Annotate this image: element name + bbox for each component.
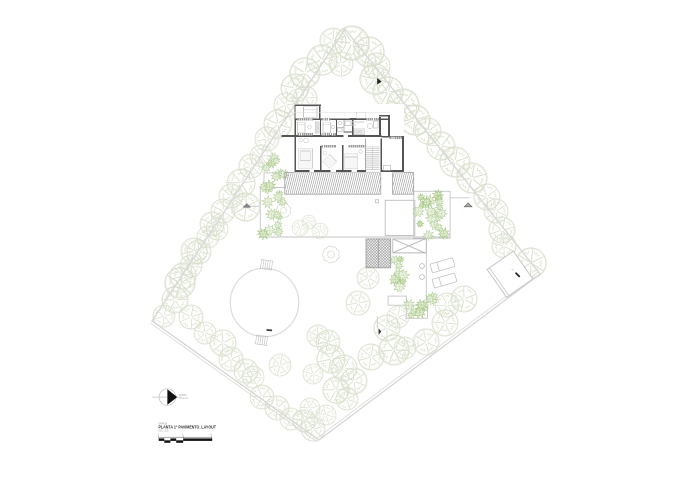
- svg-text:ESC 1:100: ESC 1:100: [159, 430, 170, 433]
- svg-text:VERDADEIRO: VERDADEIRO: [180, 397, 189, 400]
- svg-text:NORTE: NORTE: [180, 393, 187, 397]
